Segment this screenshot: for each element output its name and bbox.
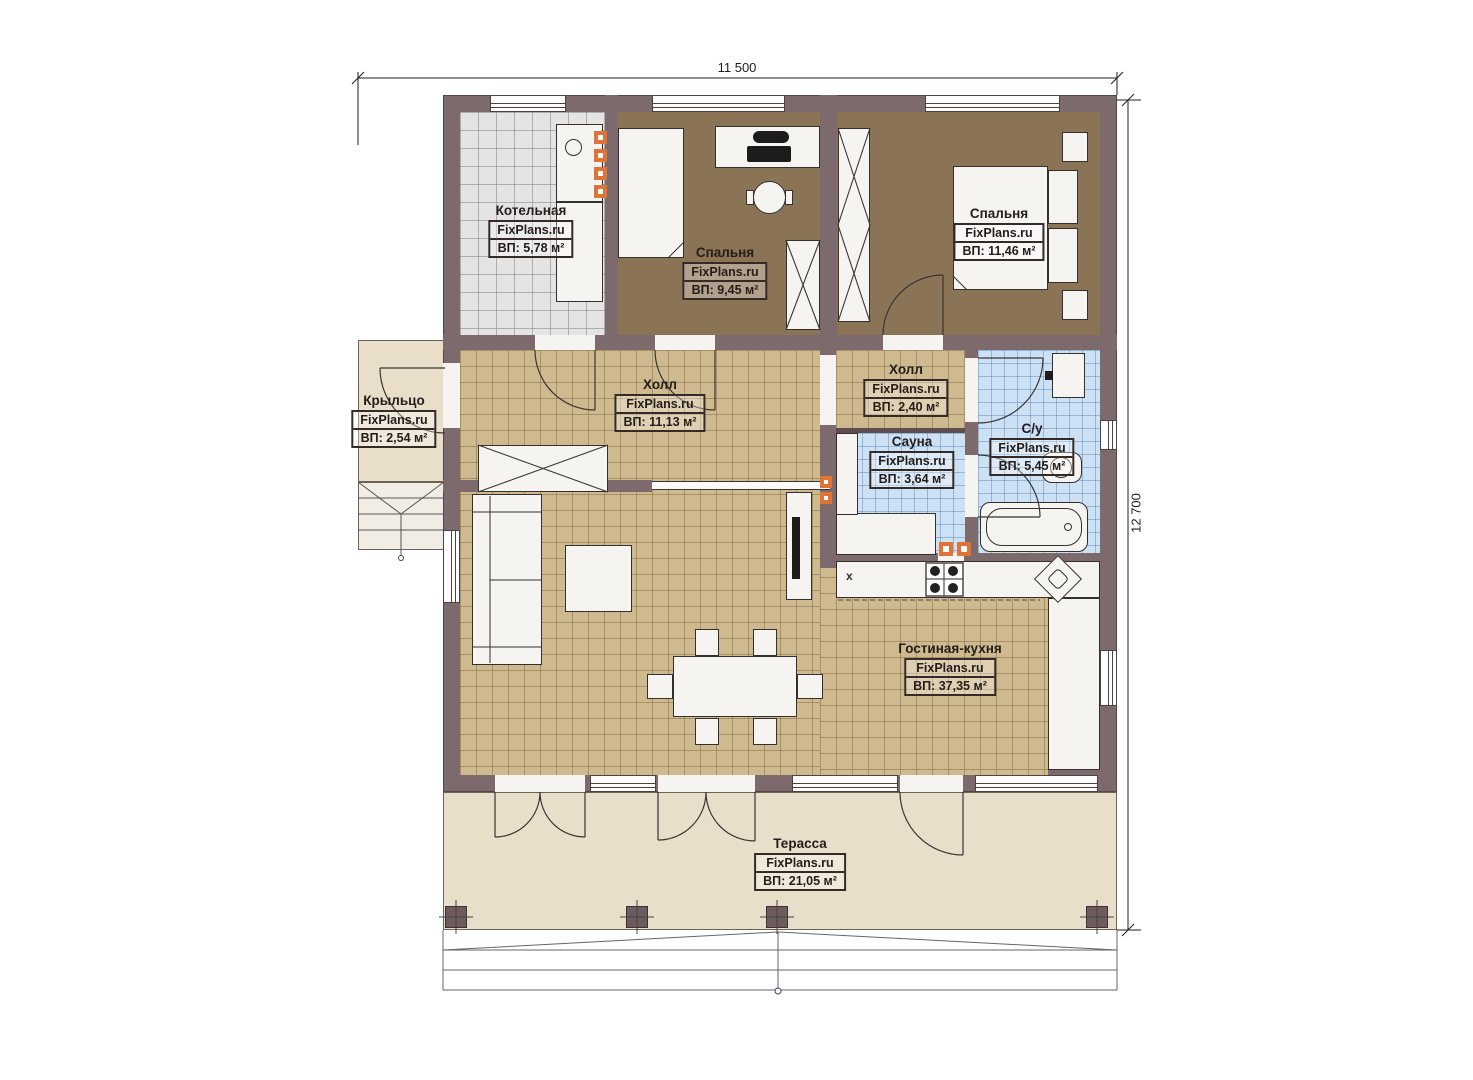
dining-chair (647, 674, 673, 699)
room-name: Гостиная-кухня (898, 641, 1001, 656)
room-label-terrace: Терасса FixPlans.ru ВП: 21,05 м² (754, 836, 846, 891)
watermark: FixPlans.ru (756, 855, 844, 871)
bathtub-drain (1064, 523, 1072, 531)
sauna-heater-icon (820, 476, 832, 488)
dining-chair (695, 629, 719, 656)
room-area: ВП: 21,05 м² (756, 871, 844, 889)
nightstand (1062, 290, 1088, 320)
bedroom2-wardrobe (838, 128, 870, 322)
room-label-hall: Холл FixPlans.ru ВП: 11,13 м² (614, 377, 705, 432)
window-top-1 (490, 95, 566, 112)
sauna-heater-icon (957, 542, 971, 556)
dining-table (673, 656, 797, 717)
window-east-living (1100, 650, 1117, 706)
room-label-bedroom2: Спальня FixPlans.ru ВП: 11,46 м² (953, 206, 1044, 261)
room-label-bedroom1: Спальня FixPlans.ru ВП: 9,45 м² (682, 245, 767, 300)
bathroom-sink (1052, 353, 1085, 398)
room-area: ВП: 2,40 м² (865, 397, 946, 415)
window-west-living (443, 530, 460, 603)
window-east-bathroom (1100, 420, 1117, 450)
room-area: ВП: 5,78 м² (490, 238, 571, 256)
watermark: FixPlans.ru (906, 660, 994, 676)
room-name: Терасса (754, 836, 846, 851)
dimension-height-label: 12 700 (1129, 493, 1144, 533)
sofa (472, 494, 542, 665)
terrace-column (766, 906, 788, 928)
room-name: Холл (614, 377, 705, 392)
boiler-unit-dial (565, 139, 582, 156)
watermark: FixPlans.ru (865, 381, 946, 397)
floor-plan-canvas: 11 500 12 700 (0, 0, 1473, 1080)
boiler-door-opening (535, 335, 595, 350)
wall-stub-center (608, 480, 652, 492)
room-label-bathroom: С/у FixPlans.ru ВП: 5,45 м² (989, 421, 1074, 476)
sink-tap-icon (1045, 371, 1053, 380)
window-top-3 (925, 95, 1060, 112)
wall-stub-west (443, 480, 478, 492)
watermark: FixPlans.ru (616, 396, 703, 412)
radiator-icon (594, 167, 607, 180)
room-area: ВП: 9,45 м² (684, 280, 765, 298)
radiator-icon (594, 185, 607, 198)
radiator-icon (594, 149, 607, 162)
window-south-1 (590, 775, 656, 792)
terrace-column (1086, 906, 1108, 928)
room-name: Холл (863, 362, 948, 377)
watermark: FixPlans.ru (991, 440, 1072, 456)
room-name: Сауна (869, 434, 954, 449)
room-area: ВП: 37,35 м² (906, 676, 994, 694)
office-chair-armrest (785, 190, 793, 205)
bedroom1-wardrobe (786, 240, 820, 330)
room-area: ВП: 5,45 м² (991, 456, 1072, 474)
bed-pillow (1048, 170, 1078, 224)
room-area: ВП: 2,54 м² (353, 428, 434, 446)
hall-closet (478, 445, 608, 492)
watermark: FixPlans.ru (353, 412, 434, 428)
coffee-table (565, 545, 632, 612)
dining-chair (753, 629, 777, 656)
terrace-column (626, 906, 648, 928)
dimension-width-label: 11 500 (718, 60, 757, 75)
dining-chair (695, 718, 719, 745)
room-area: ВП: 11,46 м² (955, 241, 1042, 259)
sauna-bench-side (836, 433, 858, 515)
sauna-bench (836, 513, 936, 555)
bedroom2-door-opening (883, 335, 943, 350)
window-south-2 (792, 775, 898, 792)
room-area: ВП: 11,13 м² (616, 412, 703, 430)
sauna-bathroom-door-opening (965, 455, 978, 517)
watermark: FixPlans.ru (955, 225, 1042, 241)
radiator-icon (594, 131, 607, 144)
bedroom1-door-opening (655, 335, 715, 350)
porch-steps (358, 482, 444, 550)
roof-outline-lines (443, 930, 1117, 994)
room-name: С/у (989, 421, 1074, 436)
desk-lamp-icon (753, 131, 789, 143)
hall-living-wide-opening (652, 481, 830, 490)
room-name: Спальня (953, 206, 1044, 221)
desk-laptop-icon (747, 146, 791, 162)
terrace-door-opening-c (900, 775, 963, 792)
watermark: FixPlans.ru (490, 222, 571, 238)
bed-pillow (1048, 228, 1078, 283)
room-name: Спальня (682, 245, 767, 260)
hall-hall2-opening (820, 355, 836, 425)
room-label-sauna: Сауна FixPlans.ru ВП: 3,64 м² (869, 434, 954, 489)
room-label-boiler: Котельная FixPlans.ru ВП: 5,78 м² (488, 203, 573, 258)
dining-chair (797, 674, 823, 699)
room-name: Котельная (488, 203, 573, 218)
room-area: ВП: 3,64 м² (871, 469, 952, 487)
bedroom1-bed (618, 128, 684, 258)
watermark: FixPlans.ru (684, 264, 765, 280)
entrance-door-opening (443, 363, 460, 428)
sauna-heater-icon (939, 542, 953, 556)
bathroom-door-opening (965, 358, 978, 422)
nightstand (1062, 132, 1088, 162)
terrace-column (445, 906, 467, 928)
wall-bedroom1-bedroom2 (820, 95, 837, 350)
room-label-porch: Крыльцо FixPlans.ru ВП: 2,54 м² (351, 393, 436, 448)
fridge-marker: x (846, 569, 853, 583)
kitchen-counter-side (1048, 598, 1100, 770)
room-label-living: Гостиная-кухня FixPlans.ru ВП: 37,35 м² (898, 641, 1001, 696)
window-south-3 (975, 775, 1098, 792)
office-chair-armrest (746, 190, 754, 205)
window-top-2 (652, 95, 785, 112)
terrace-door-opening-a (495, 775, 585, 792)
tv-icon (792, 517, 800, 579)
terrace-door-opening-b (658, 775, 755, 792)
office-chair (753, 181, 786, 214)
sauna-heater-icon (820, 492, 832, 504)
room-name: Крыльцо (351, 393, 436, 408)
watermark: FixPlans.ru (871, 453, 952, 469)
dining-chair (753, 718, 777, 745)
room-label-hall2: Холл FixPlans.ru ВП: 2,40 м² (863, 362, 948, 417)
